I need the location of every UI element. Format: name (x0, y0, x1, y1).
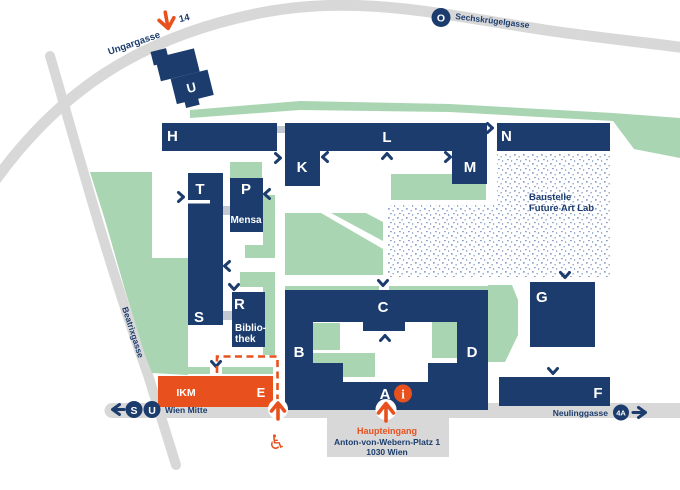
building-u: U (150, 40, 215, 113)
green-above-p (230, 162, 262, 178)
building-b-label: B (294, 344, 305, 361)
building-p-label: P (241, 181, 251, 198)
green-strip-top (190, 101, 613, 121)
bibliothek-label-line1: Biblio- (235, 323, 266, 334)
station-label-wien-mitte: Wien Mitte (165, 405, 208, 415)
building-h (162, 123, 277, 151)
bibliothek-label-line2: thek (235, 334, 256, 345)
building-t-label: T (195, 181, 204, 198)
campus-map: U H L K M N T P Mensa S R Biblio- thek B… (0, 0, 680, 490)
entrance-chevron-icon (549, 369, 558, 374)
entrance-chevron-icon (212, 362, 221, 367)
mensa-label: Mensa (230, 215, 262, 226)
main-entrance-label: Haupteingang (357, 426, 417, 436)
entrance-chevron-icon (230, 285, 239, 290)
connector-s-r (223, 311, 232, 320)
baustelle-label-line2: Future Art Lab (529, 203, 594, 214)
info-icon-letter: i (401, 387, 405, 402)
building-e-label: E (257, 385, 266, 400)
entrance-chevron-icon (383, 154, 392, 159)
building-t-s (188, 173, 223, 325)
sbahn-badge-letter: S (130, 405, 137, 417)
entrance-chevron-icon (225, 262, 230, 271)
tram-line-o-label: O (437, 13, 445, 25)
entrance-chevron-icon (379, 281, 388, 286)
entrance-chevron-icon (323, 153, 328, 162)
building-ikm-label: IKM (176, 387, 196, 399)
connector-h-l (277, 126, 285, 133)
building-f-label: F (593, 385, 602, 402)
wheelchair-icon: ♿ (268, 430, 286, 454)
green-court-center (285, 213, 383, 275)
tram-line-14-label: 14 (178, 12, 192, 25)
street-label-sechskruegelgasse: Sechskrügelgasse (455, 11, 531, 30)
building-c-label: C (378, 299, 389, 316)
building-m-label: M (464, 159, 477, 176)
building-n-label: N (501, 128, 512, 145)
building-n (497, 123, 610, 151)
green-wedge-top-right (613, 113, 680, 158)
green-strip-above-ikm-right (222, 367, 273, 374)
building-r-label: R (234, 296, 245, 313)
building-s-label: S (194, 309, 204, 326)
entrance-chevron-icon (446, 153, 451, 162)
green-courtyard-1 (313, 323, 340, 350)
entrance-chevron-icon (381, 336, 390, 341)
building-t-entrance-notch (188, 200, 210, 204)
baustelle-label-line1: Baustelle (529, 192, 571, 203)
building-h-label: H (167, 128, 178, 145)
main-entrance-address-line2: 1030 Wien (366, 447, 408, 457)
ubahn-badge-letter: U (148, 405, 156, 417)
construction-site-area (388, 153, 610, 277)
entrance-chevron-icon (488, 124, 493, 133)
campus-map-page: U H L K M N T P Mensa S R Biblio- thek B… (0, 0, 680, 490)
bus-line-4a-label: 4A (616, 409, 626, 418)
building-l-label: L (382, 129, 391, 146)
street-label-neulinggasse: Neulinggasse (553, 408, 609, 418)
building-k-label: K (297, 159, 308, 176)
main-entrance-address-line1: Anton-von-Webern-Platz 1 (334, 437, 440, 447)
green-courtyard-3 (432, 322, 457, 358)
connector-t-p (223, 206, 230, 215)
green-strip-above-ikm-left (170, 367, 210, 374)
green-east-of-d (488, 285, 518, 362)
building-d-label: D (467, 344, 478, 361)
entrance-chevron-icon (179, 193, 184, 202)
entrance-chevron-icon (276, 154, 281, 163)
building-g-label: G (536, 289, 548, 306)
